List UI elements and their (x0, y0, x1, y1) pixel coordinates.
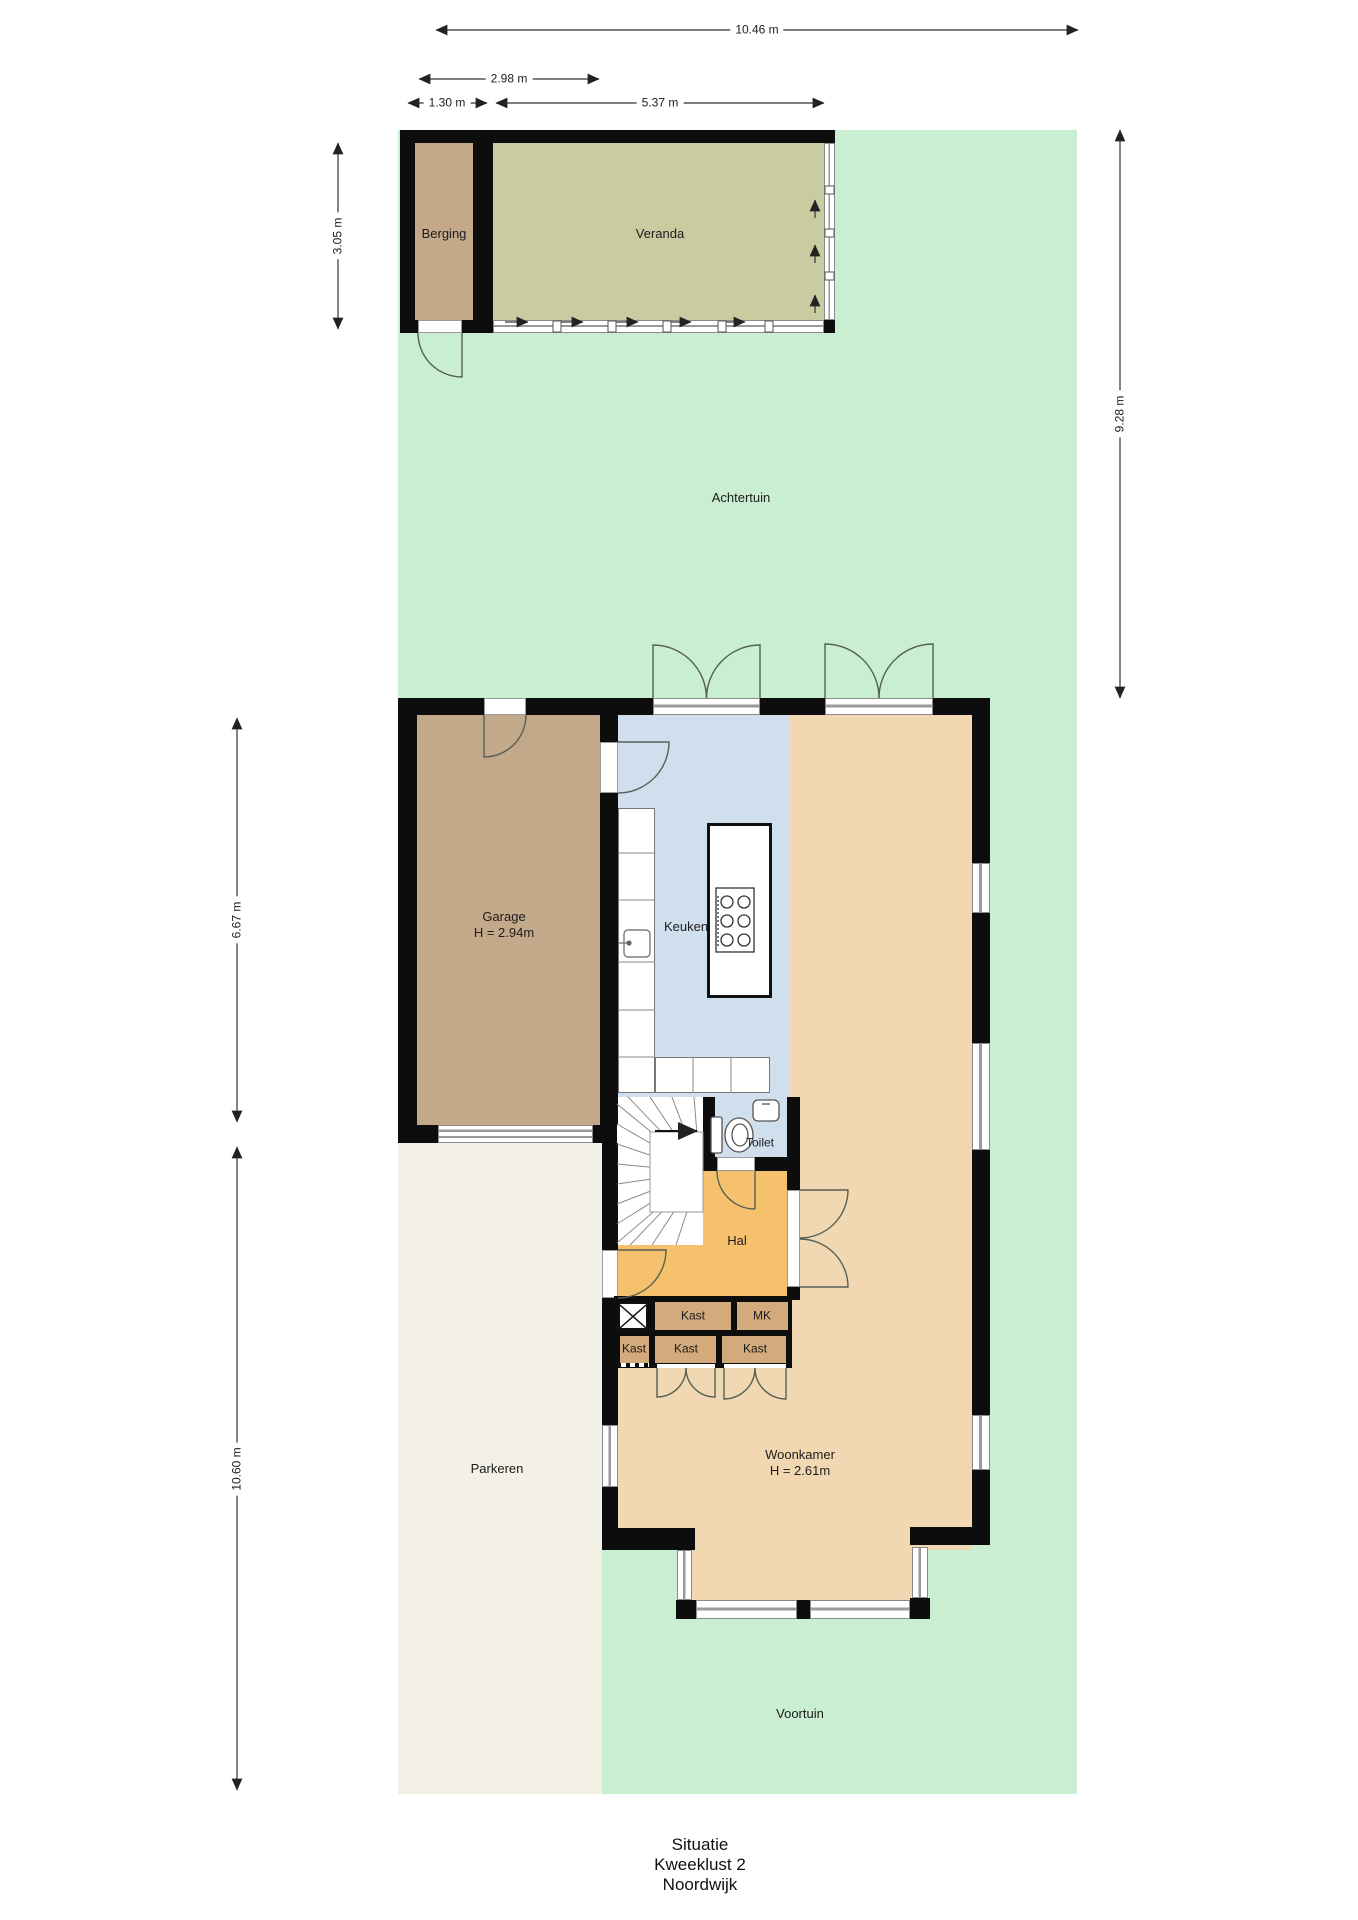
room-toilet-floor (710, 1097, 787, 1160)
label-kast-c: Kast (743, 1342, 767, 1357)
window-bay-front-1 (696, 1600, 797, 1619)
label-mk: MK (753, 1309, 771, 1324)
label-garage-height: H = 2.94m (474, 925, 534, 941)
keuken-door-opening (600, 742, 618, 793)
floorplan-canvas: Berging Veranda Achtertuin Garage H = 2.… (0, 0, 1358, 1920)
window-right-3 (972, 1415, 990, 1470)
hal-double-door-opening (787, 1190, 800, 1287)
window-left-woonkamer (602, 1425, 618, 1487)
dim-berging-depth: 3.05 m (331, 213, 346, 260)
shaft-box (618, 1302, 648, 1330)
window-bay-right (912, 1547, 928, 1598)
window-right-2 (972, 1043, 990, 1150)
label-toilet: Toilet (746, 1136, 774, 1151)
wall-stair-stub (677, 1157, 703, 1183)
closet-door-opening-c (724, 1364, 786, 1368)
veranda-window-wall-bottom (493, 320, 824, 333)
label-garage: Garage H = 2.94m (474, 909, 534, 942)
label-kast-b: Kast (674, 1342, 698, 1357)
label-woonkamer-height: H = 2.61m (765, 1463, 835, 1479)
window-bay-front-2 (810, 1600, 910, 1619)
veranda-window-wall-right (824, 143, 835, 320)
plan-title-line3: Noordwijk (663, 1875, 738, 1895)
french-door-woonkamer-opening (825, 698, 933, 715)
label-parkeren: Parkeren (471, 1461, 524, 1477)
plan-title-line1: Situatie (672, 1835, 729, 1855)
garage-door-opening (438, 1125, 593, 1143)
label-keuken: Keuken (664, 919, 708, 935)
room-woonkamer-bay-floor (692, 1550, 916, 1600)
label-woonkamer-name: Woonkamer (765, 1447, 835, 1463)
wall-step-right (910, 1527, 990, 1545)
wall-bay-corner-right (910, 1598, 930, 1619)
label-kast-upper: Kast (681, 1309, 705, 1324)
berging-door-opening (418, 320, 462, 333)
dim-garage-depth: 6.67 m (230, 897, 245, 944)
label-hal: Hal (727, 1233, 747, 1249)
toilet-door-opening (717, 1157, 755, 1171)
wall-step-left (602, 1528, 695, 1550)
label-kast-a: Kast (622, 1342, 646, 1357)
label-garage-name: Garage (474, 909, 534, 925)
label-achtertuin: Achtertuin (712, 490, 771, 506)
label-woonkamer: Woonkamer H = 2.61m (765, 1447, 835, 1480)
garage-rear-door-opening (484, 698, 526, 715)
front-door-opening (602, 1250, 618, 1298)
label-veranda: Veranda (636, 226, 684, 242)
label-voortuin: Voortuin (776, 1706, 824, 1722)
closet-door-opening-b (657, 1364, 715, 1368)
dim-berging-width: 1.30 m (424, 96, 471, 111)
kitchen-island (707, 823, 772, 998)
dim-veranda-width: 5.37 m (637, 96, 684, 111)
dim-total-width: 10.46 m (730, 23, 783, 38)
kitchen-counter-bottom (655, 1057, 770, 1093)
window-bay-left (677, 1550, 692, 1600)
dim-parkeren-depth: 10.60 m (230, 1442, 245, 1495)
plan-title-line2: Kweeklust 2 (654, 1855, 746, 1875)
window-right-1 (972, 863, 990, 913)
room-woonkamer-floor-right (790, 715, 972, 1550)
dim-berging-veranda: 2.98 m (486, 72, 533, 87)
label-berging: Berging (422, 226, 467, 242)
kitchen-counter-left (618, 808, 655, 1093)
french-door-keuken-opening (653, 698, 760, 715)
wall-left-garage (398, 715, 417, 1125)
dim-achtertuin-depth: 9.28 m (1113, 391, 1128, 438)
